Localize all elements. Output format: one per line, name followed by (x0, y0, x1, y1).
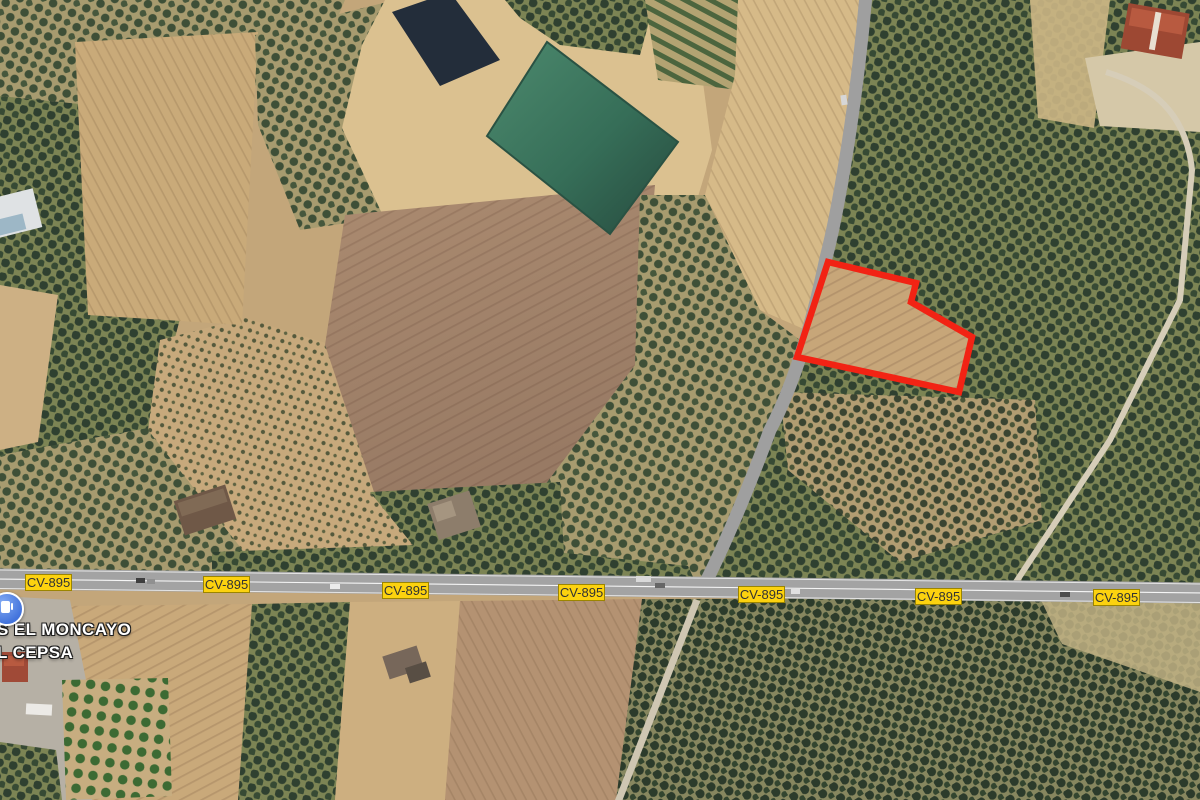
orchard-area (62, 678, 172, 800)
road-ref-badge: CV-895 (558, 584, 605, 601)
plow-lines (75, 32, 258, 325)
road-ref-badge: CV-895 (382, 582, 429, 599)
plow-lines (445, 599, 642, 800)
fuel-pump-glyph (1, 601, 10, 613)
road-ref-badge: CV-895 (738, 586, 785, 603)
orchard-area (0, 742, 62, 800)
road-ref-badge: CV-895 (1093, 589, 1140, 606)
satellite-map-view[interactable]: CV-895CV-895CV-895CV-895CV-895CV-895CV-8… (0, 0, 1200, 800)
orchard-area (238, 602, 350, 800)
map-canvas[interactable] (0, 0, 1200, 800)
road-ref-badge: CV-895 (203, 576, 250, 593)
place-label[interactable]: S EL MONCAYO (0, 620, 131, 640)
place-label[interactable]: L CEPSA (0, 643, 73, 663)
road-ref-badge: CV-895 (25, 574, 72, 591)
truck (26, 703, 53, 715)
road-ref-badge: CV-895 (915, 588, 962, 605)
bare-field (335, 601, 460, 800)
